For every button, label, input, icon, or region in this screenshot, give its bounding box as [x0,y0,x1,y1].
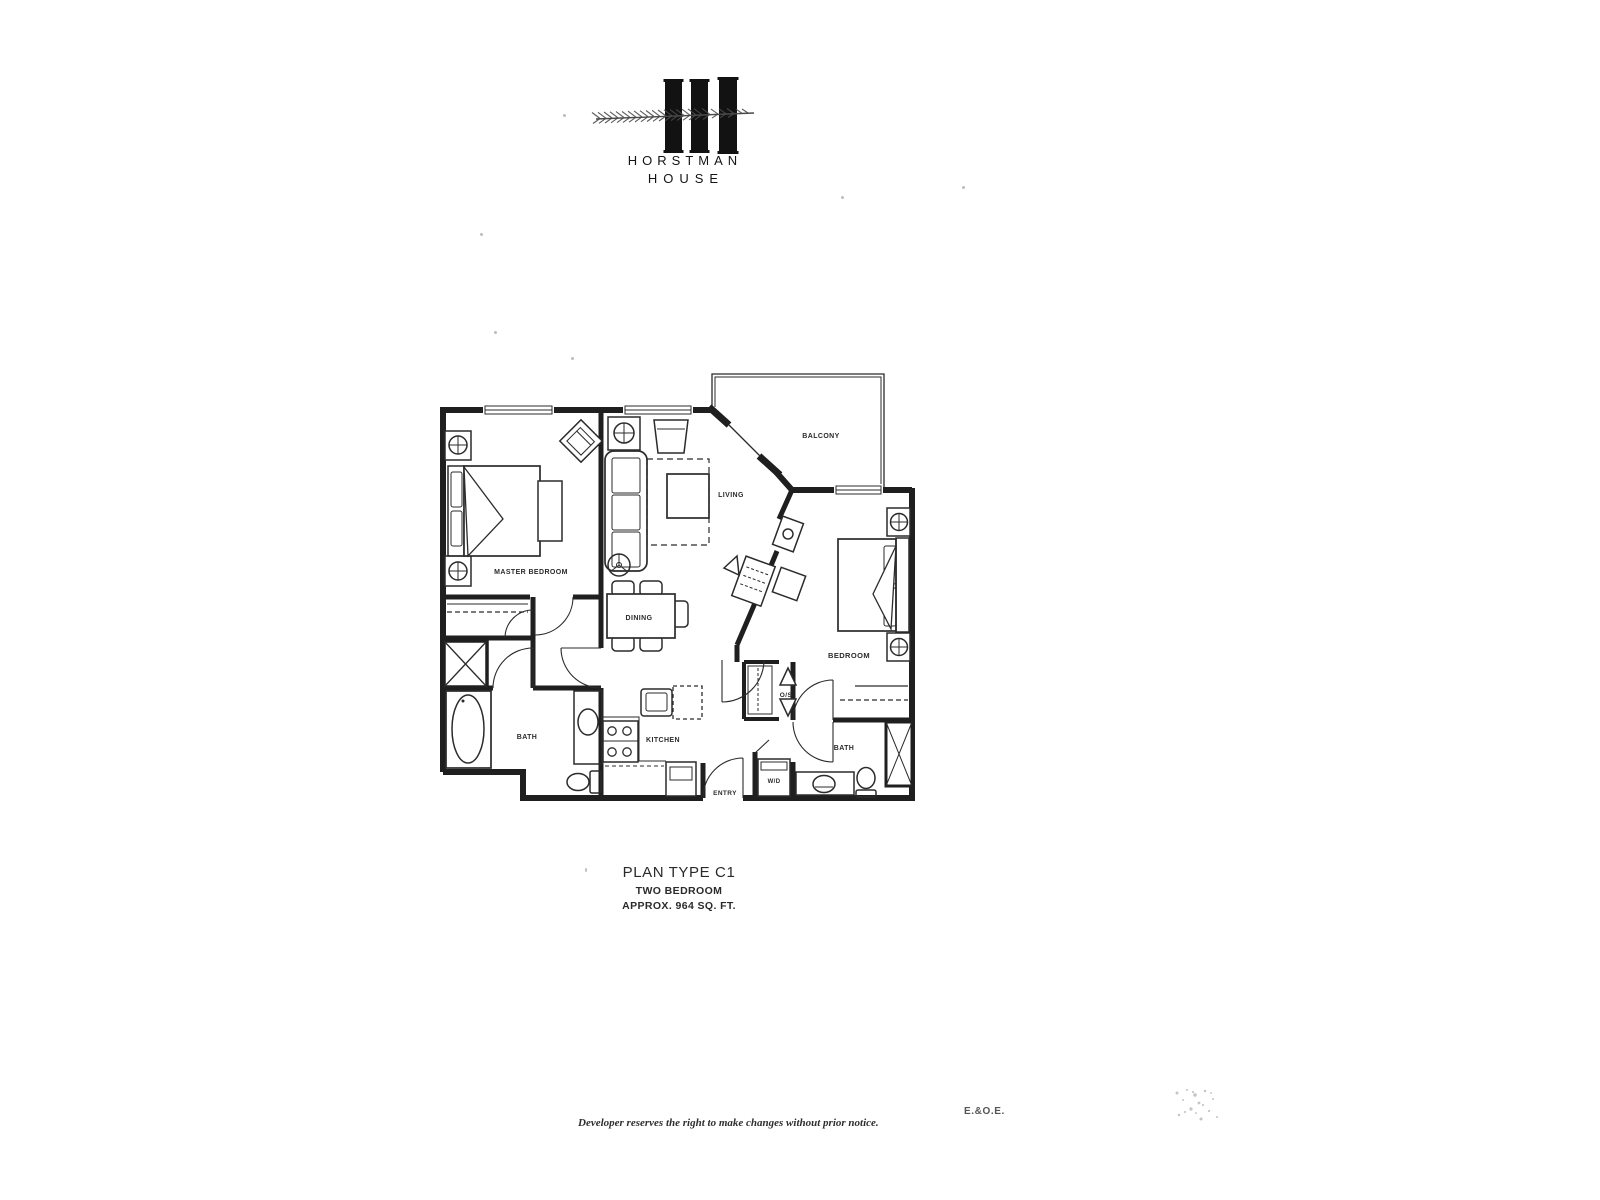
eoe-text: E.&O.E. [964,1106,1005,1117]
scan-speck [841,196,844,199]
linen-closet-x2 [886,722,912,786]
logo-name-line1: HORSTMAN [590,153,775,168]
toilet-symbol [567,771,601,793]
bedroom-bed-symbol [838,508,910,661]
walkin-closet [447,604,528,612]
scan-speck [480,233,483,236]
master-bed-symbol [445,420,602,586]
floor-plan-drawing: MASTER BEDROOM LIVING BALCONY DINING BED… [420,350,920,810]
room-label-storage: O/S [780,692,793,699]
plan-area: APPROX. 964 SQ. FT. [579,900,779,912]
room-label-master-bedroom: MASTER BEDROOM [494,569,568,576]
bedroom-closet [840,686,908,700]
room-label-living: LIVING [718,492,744,499]
linen-closet-x [444,641,487,687]
room-label-dining: DINING [626,615,653,622]
storage-closet [748,666,796,716]
plan-title-block: PLAN TYPE C1 TWO BEDROOM APPROX. 964 SQ.… [579,864,779,912]
kitchen-appliances [603,686,702,766]
vanity-sink-symbol [574,691,602,764]
scan-speck [571,357,574,360]
room-label-entry: ENTRY [713,790,737,797]
room-label-bath-master: BATH [517,734,538,741]
scan-noise-cluster [1165,1085,1235,1133]
plan-bedroom-count: TWO BEDROOM [579,885,779,897]
logo-mark [590,66,770,161]
sofa-symbol [605,417,709,576]
corner-picture [560,420,602,462]
scanned-floorplan-page: HORSTMAN HOUSE [0,0,1600,1200]
scan-speck [962,186,965,189]
fireplace-symbol [724,516,806,606]
room-label-bedroom: BEDROOM [828,651,870,660]
bath2-fixtures [796,768,876,798]
room-label-washer-dryer: W/D [768,779,781,785]
balcony-railing [712,374,884,489]
plan-type-title: PLAN TYPE C1 [579,864,779,881]
disclaimer-text: Developer reserves the right to make cha… [578,1117,879,1129]
scan-speck [494,331,497,334]
entry-closet [666,762,696,796]
scan-speck [563,114,566,117]
room-label-bath-second: BATH [834,745,855,752]
room-label-kitchen: KITCHEN [646,737,680,744]
sliding-door [729,425,760,456]
scan-speck [585,868,587,872]
bathtub-symbol [446,691,491,768]
logo-name-line2: HOUSE [590,171,776,186]
washer-dryer-symbol [758,759,790,796]
room-label-balcony: BALCONY [802,433,839,440]
